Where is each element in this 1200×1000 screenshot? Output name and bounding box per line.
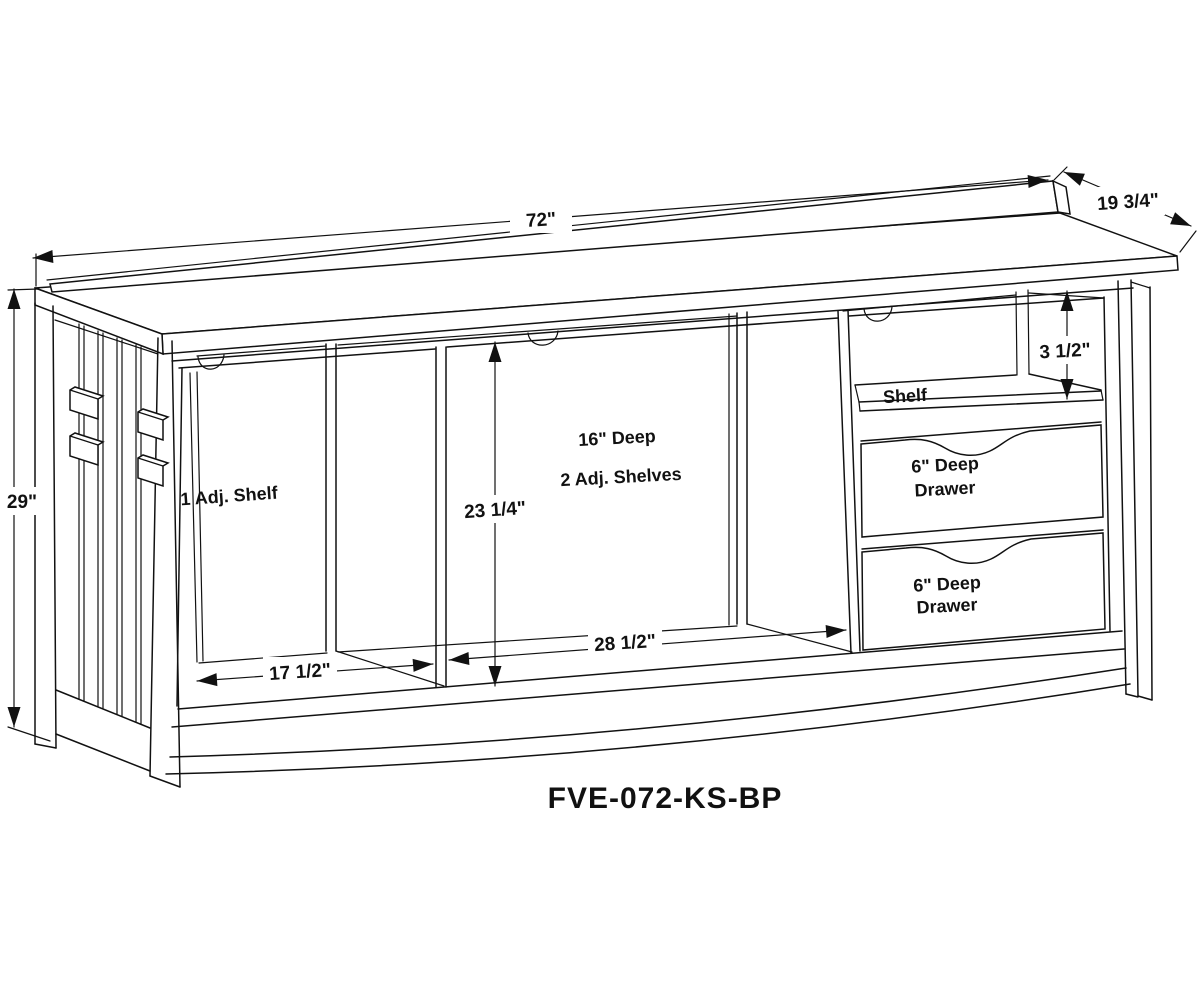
drawer-1-front	[861, 425, 1103, 537]
arrowhead	[8, 707, 21, 727]
front-right-leg-bottom	[1126, 694, 1138, 697]
arrowhead	[489, 342, 502, 362]
middle-floor-back-edge	[338, 626, 737, 652]
drawer-1-label-line2: Drawer	[914, 477, 976, 500]
drawer-1-back-top-edge	[861, 422, 1101, 441]
dim-ext-29-top	[8, 289, 38, 290]
left-side-panel	[35, 303, 168, 771]
dim-label-middle-width: 28 1/2"	[594, 631, 657, 656]
drawer-2	[862, 530, 1105, 650]
model-number: FVE-072-KS-BP	[548, 782, 783, 815]
right-end-outer-edge	[1150, 287, 1152, 700]
furniture-dimension-drawing: 72" 19 3/4" 29" 3 1/2" 23 1/4" 17 1/2" 2…	[0, 0, 1200, 1000]
left-opening-top	[179, 349, 435, 368]
arrowhead	[1170, 212, 1191, 226]
side-cross-bars	[70, 387, 168, 486]
dim-ext-19-right	[1180, 231, 1196, 252]
shelf-label: Shelf	[882, 385, 928, 407]
dim-label-overall-depth: 19 3/4"	[1097, 190, 1160, 215]
drawer-1-label-line1: 6" Deep	[911, 453, 980, 477]
right-ceiling-back-edge	[843, 295, 1016, 311]
front-right-leg-right-edge	[1131, 280, 1138, 696]
right-opening-right-edge	[1104, 297, 1110, 631]
dim-label-shelf-opening-height: 3 1/2"	[1039, 340, 1091, 364]
front-right-leg-left-edge	[1118, 281, 1126, 694]
arrowhead	[8, 289, 21, 309]
arrowhead	[826, 625, 846, 638]
side-bottom-rail-bottom	[56, 734, 150, 771]
front-left-leg-bottom	[150, 776, 180, 787]
tv-console-line-drawing: 72" 19 3/4" 29" 3 1/2" 23 1/4" 17 1/2" 2…	[0, 0, 1200, 1000]
middle-section-label-depth: 16" Deep	[578, 426, 657, 450]
dim-label-middle-height: 23 1/4"	[464, 498, 527, 523]
interior-back-left-post	[197, 372, 203, 661]
partition-1	[326, 344, 446, 687]
front-left-leg-left-edge	[150, 338, 158, 776]
back-left-leg-inner-edge	[53, 306, 56, 748]
middle-section-label-shelves: 2 Adj. Shelves	[560, 464, 682, 490]
arrowhead	[1061, 379, 1074, 399]
dim-label-overall-height: 29"	[7, 492, 37, 513]
arrowhead	[1064, 172, 1085, 186]
arrowhead	[197, 673, 217, 686]
drawer-2-front	[862, 533, 1105, 650]
dim-label-left-width: 17 1/2"	[269, 660, 332, 685]
cabinet-body	[150, 280, 1152, 787]
arrowhead	[449, 652, 469, 665]
right-end-top-edge	[1131, 282, 1150, 288]
drawer-1	[861, 422, 1103, 537]
right-end-bottom-edge	[1138, 696, 1152, 700]
interior-back-left-post	[190, 373, 197, 662]
dim-ext-29-bottom	[8, 727, 50, 741]
drawer-2-label-line1: 6" Deep	[913, 572, 982, 596]
partition-2	[729, 310, 860, 653]
side-slats	[79, 324, 141, 724]
dim-ext-19-left	[1054, 167, 1067, 180]
dim-label-overall-width: 72"	[525, 209, 557, 232]
arrowhead	[413, 659, 433, 672]
back-left-leg-bottom	[35, 744, 56, 748]
drawer-2-back-top-edge	[862, 530, 1103, 549]
drawer-2-label-line2: Drawer	[916, 594, 978, 617]
left-section-label: 1 Adj. Shelf	[180, 483, 280, 510]
